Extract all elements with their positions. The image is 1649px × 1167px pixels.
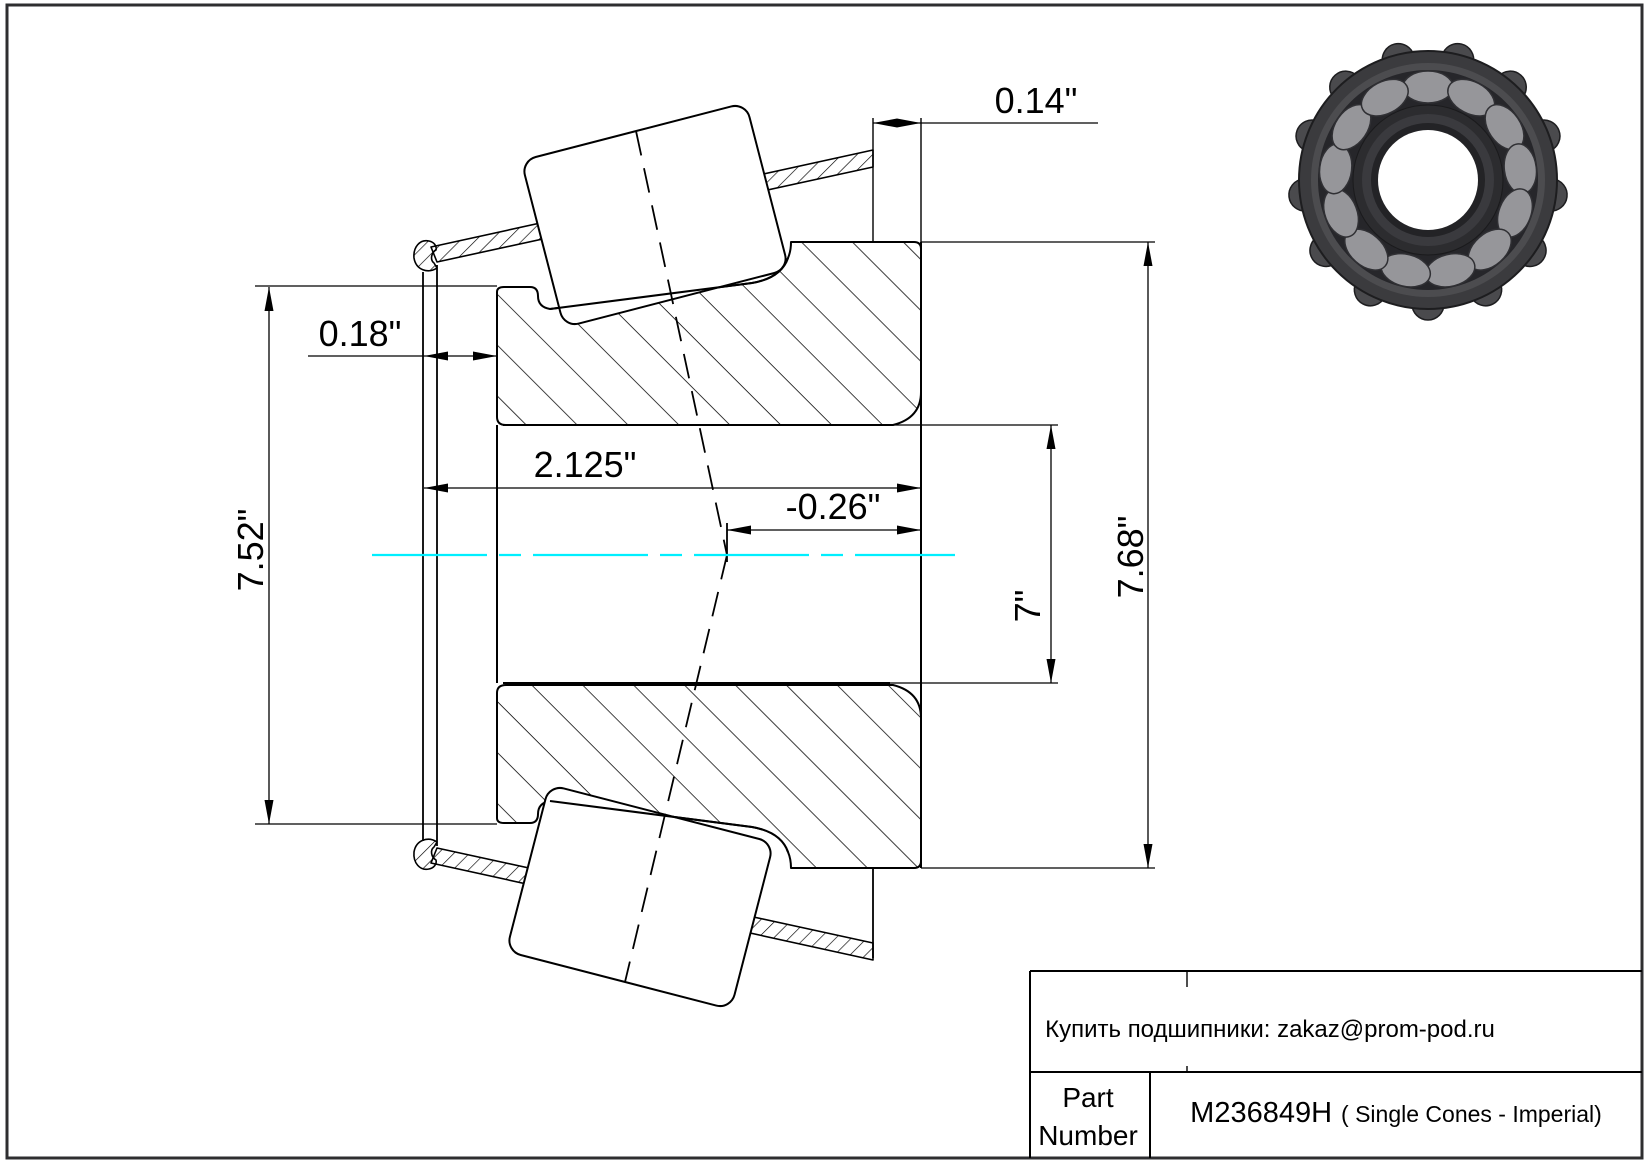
drawing-page: 0.14" 0.18" 2.125" - bbox=[0, 0, 1649, 1167]
dim-front-face-offset: 0.18" bbox=[308, 313, 497, 361]
dim-effective-center-offset: -0.26" bbox=[727, 486, 921, 562]
bearing-3d-thumbnail bbox=[1287, 40, 1569, 320]
engineering-drawing-canvas: 0.14" 0.18" 2.125" - bbox=[0, 0, 1649, 1167]
title-block: Купить подшипники: zakaz@prom-pod.ru Par… bbox=[1030, 971, 1642, 1158]
dim-back-face-offset: 0.14" bbox=[873, 80, 1098, 242]
cage-rim-section-lower bbox=[414, 839, 437, 869]
bearing-cross-section: 0.14" 0.18" 2.125" - bbox=[230, 80, 1155, 1009]
part-number-cell: M236849H( Single Cones - Imperial) bbox=[1190, 1097, 1602, 1129]
purchase-note: Купить подшипники: zakaz@prom-pod.ru bbox=[1045, 1016, 1495, 1043]
part-label-line2: Number bbox=[1038, 1120, 1138, 1151]
dim-outer-diameter: 7.68" bbox=[921, 242, 1155, 868]
part-series: ( Single Cones - Imperial) bbox=[1341, 1101, 1602, 1127]
cage-rim-section-upper bbox=[414, 241, 437, 271]
dim-label-front-face-offset: 0.18" bbox=[319, 313, 402, 354]
dim-label-cone-width: 2.125" bbox=[534, 444, 637, 485]
part-label-line1: Part bbox=[1062, 1082, 1114, 1113]
dim-label-back-face-offset: 0.14" bbox=[995, 80, 1078, 121]
dim-label-outer-diameter: 7.68" bbox=[1110, 516, 1151, 599]
dim-label-effective-center-offset: -0.26" bbox=[786, 486, 881, 527]
dim-label-bore-diameter: 7" bbox=[1007, 590, 1048, 623]
dim-label-cage-rib-diameter: 7.52" bbox=[230, 509, 271, 592]
bearing-bore-hole bbox=[1378, 130, 1478, 230]
part-number: M236849H bbox=[1190, 1097, 1332, 1129]
